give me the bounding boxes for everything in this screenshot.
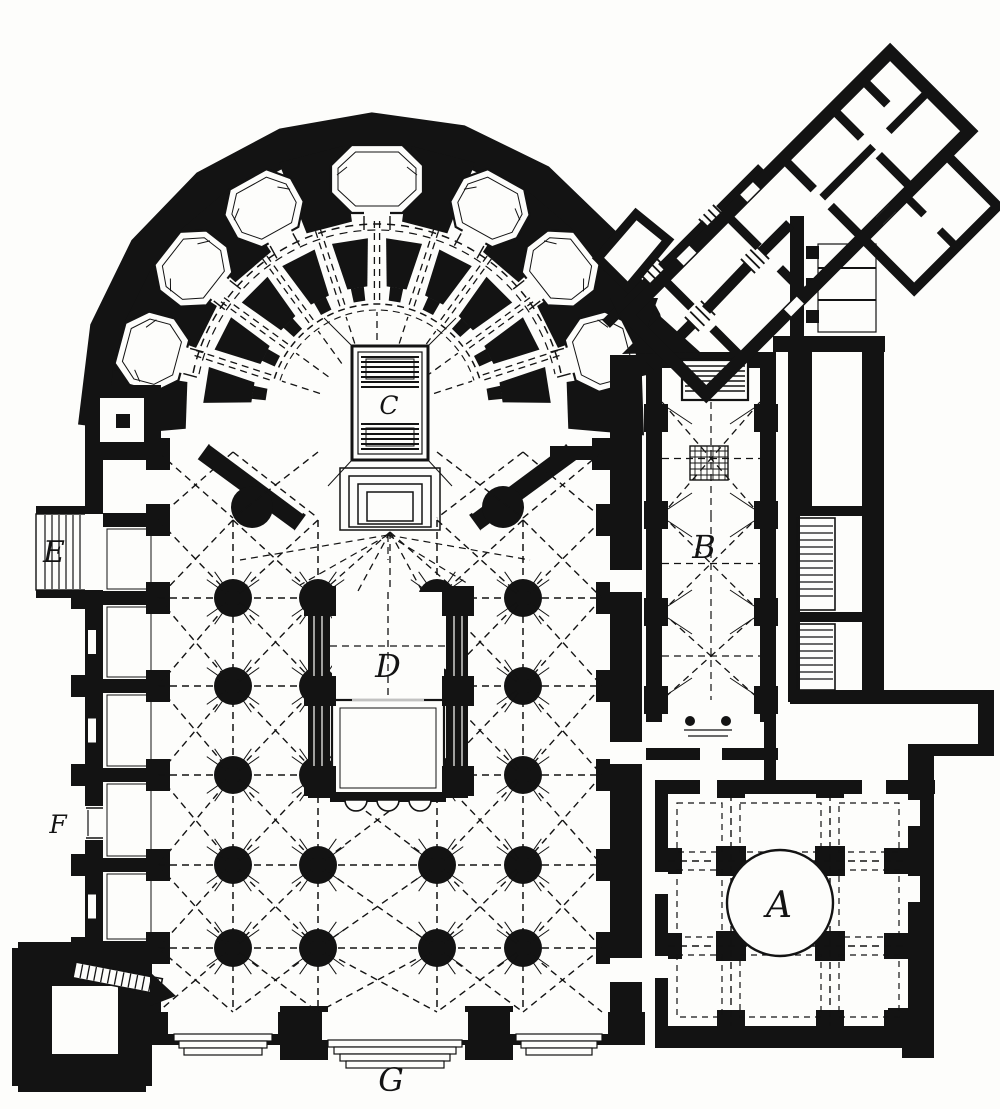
plan-label-a: A — [763, 885, 792, 926]
plan-label-d: D — [374, 647, 401, 685]
floor-plan-drawing: ABCDEFG — [0, 0, 1000, 1109]
plan-label-f: F — [48, 810, 68, 839]
plan-label-e: E — [42, 535, 65, 570]
choir-enclosure-D — [304, 586, 474, 811]
plan-label-b: B — [691, 528, 716, 566]
engraving-page: ABCDEFG — [0, 0, 1000, 1109]
plan-label-c: C — [379, 391, 398, 420]
bell-tower — [8, 938, 176, 1096]
plan-label-g: G — [378, 1061, 404, 1099]
